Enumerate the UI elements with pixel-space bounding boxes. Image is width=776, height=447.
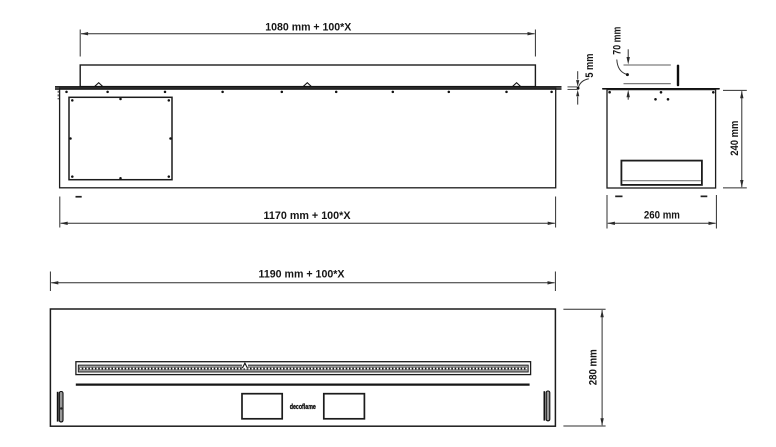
- svg-text:70 mm: 70 mm: [612, 27, 624, 55]
- svg-text:260 mm: 260 mm: [644, 209, 680, 221]
- svg-text:240 mm: 240 mm: [729, 121, 741, 156]
- svg-text:decoflame: decoflame: [290, 404, 316, 411]
- svg-text:1170 mm + 100*X: 1170 mm + 100*X: [264, 210, 352, 222]
- svg-text:280 mm: 280 mm: [588, 349, 600, 385]
- svg-text:5 mm: 5 mm: [584, 54, 596, 78]
- svg-text:1190 mm + 100*X: 1190 mm + 100*X: [259, 269, 346, 281]
- svg-text:1080 mm + 100*X: 1080 mm + 100*X: [265, 22, 352, 34]
